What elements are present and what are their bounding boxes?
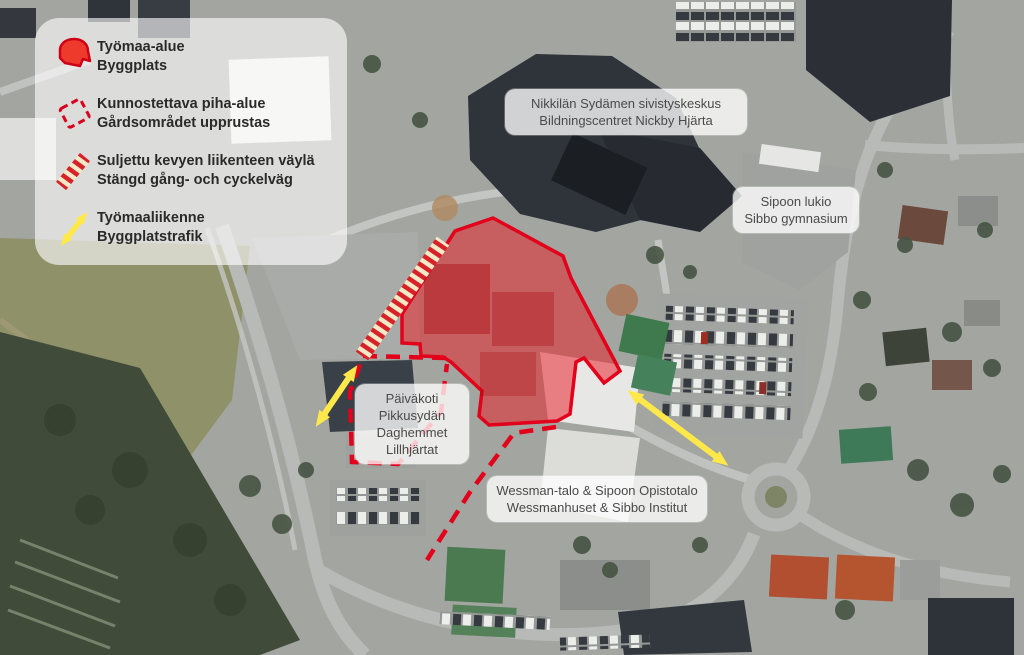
legend-item-construction-traffic: Työmaaliikenne Byggplatstrafik xyxy=(51,205,337,251)
legend-item-construction-area: Työmaa-alue Byggplats xyxy=(51,34,337,80)
legend-label-sv: Byggplats xyxy=(97,57,185,76)
roundabout-island xyxy=(765,486,787,508)
label-lukio: Sipoon lukio Sibbo gymnasium xyxy=(733,187,859,233)
legend-label-fi: Työmaaliikenne xyxy=(97,209,205,228)
label-paivakoti: Päiväkoti Pikkusydän Daghemmet Lillhjärt… xyxy=(355,384,469,464)
legend-label-sv: Byggplatstrafik xyxy=(97,228,205,247)
closed-path-icon xyxy=(51,148,97,194)
aerial-map: Työmaa-alue Byggplats Kunnostettava piha… xyxy=(0,0,1024,655)
legend-item-closed-path: Suljettu kevyen liikenteen väylä Stängd … xyxy=(51,148,337,194)
playground-circle xyxy=(606,284,638,316)
legend-panel: Työmaa-alue Byggplats Kunnostettava piha… xyxy=(35,18,347,265)
label-sivistyskeskus: Nikkilän Sydämen sivistyskeskus Bildning… xyxy=(505,89,747,135)
label-wessman: Wessman-talo & Sipoon Opistotalo Wessman… xyxy=(487,476,707,522)
construction-traffic-icon xyxy=(51,205,97,251)
legend-item-renovated-yard: Kunnostettava piha-alue Gårdsområdet upp… xyxy=(51,91,337,137)
legend-label-sv: Gårdsområdet upprustas xyxy=(97,114,270,133)
legend-label-sv: Stängd gång- och cyckelväg xyxy=(97,171,315,190)
legend-label-fi: Kunnostettava piha-alue xyxy=(97,95,270,114)
legend-label-fi: Työmaa-alue xyxy=(97,38,185,57)
construction-area-icon xyxy=(51,34,97,80)
renovated-yard-icon xyxy=(51,91,97,137)
legend-label-fi: Suljettu kevyen liikenteen väylä xyxy=(97,152,315,171)
